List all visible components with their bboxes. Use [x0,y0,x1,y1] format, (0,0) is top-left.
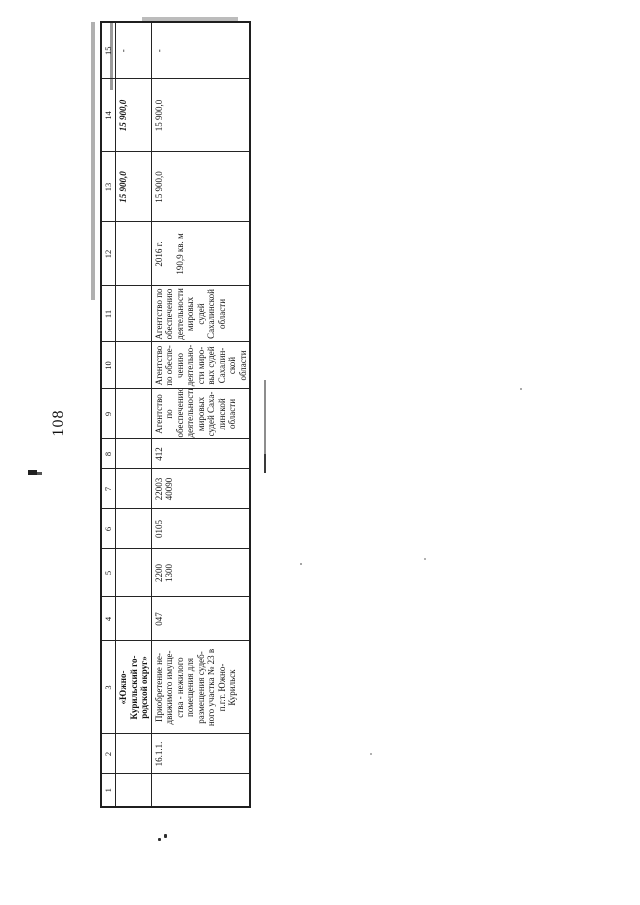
separator-line-faded [264,380,266,454]
separator-line [264,454,266,473]
item-row: 16.1.1. Приобретение не- движимого имуще… [151,22,250,807]
cell-item-description: Приобретение не- движимого имуще- ства -… [151,641,250,734]
cell-code-4: 047 [151,597,250,641]
empty-cell [151,774,250,807]
rotated-landscape-sheet: 108 1 2 3 4 5 6 [0,0,640,905]
header-cell-14: 14 [101,79,116,152]
scanned-page: 108 1 2 3 4 5 6 [0,0,640,905]
header-cell-11: 11 [101,286,116,342]
header-cell-7: 7 [101,469,116,509]
empty-cell [116,222,152,286]
cell-code-6: 0105 [151,509,250,549]
empty-cell [116,389,152,439]
cell-period-area: 2016 г. 190,9 кв. м [151,222,250,286]
page-number: 108 [50,401,68,445]
scan-speckle [158,838,161,841]
header-cell-5: 5 [101,549,116,597]
cell-code-8: 412 [151,439,250,469]
cell-item-number: 16.1.1. [151,734,250,774]
cell-agency-9: Агентство по обеспечению деятельности ми… [151,389,250,439]
scan-speckle [164,834,167,838]
header-cell-3: 3 [101,641,116,734]
cell-section-total-13: 15 900,0 [116,152,152,222]
header-cell-9: 9 [101,389,116,439]
header-cell-13: 13 [101,152,116,222]
scan-speckle [370,753,372,755]
empty-cell [116,469,152,509]
scan-speckle [520,388,522,390]
header-cell-12: 12 [101,222,116,286]
header-cell-1: 1 [101,774,116,807]
empty-cell [116,509,152,549]
empty-cell [116,286,152,342]
cell-amount-13: 15 900,0 [151,152,250,222]
cell-section-total-14: 15 900,0 [116,79,152,152]
budget-table: 1 2 3 4 5 6 7 8 9 10 11 12 13 14 15 «Южн… [100,21,251,808]
header-cell-2: 2 [101,734,116,774]
header-cell-4: 4 [101,597,116,641]
section-row: «Южно- Курильский го- родской округ» 15 … [116,22,152,807]
empty-cell [116,597,152,641]
stray-mark [28,470,37,475]
scan-speckle [300,563,302,565]
cell-code-7: 22003 40090 [151,469,250,509]
empty-cell [116,774,152,807]
scan-speckle [424,558,426,560]
empty-cell [116,439,152,469]
cell-code-5: 2200 1300 [151,549,250,597]
empty-cell [116,734,152,774]
header-cell-10: 10 [101,342,116,389]
cell-section-dash-15: - [116,22,152,79]
cell-agency-11: Агентство по обеспечению деятельности ми… [151,286,250,342]
header-cell-15: 15 [101,22,116,79]
empty-cell [116,549,152,597]
header-cell-8: 8 [101,439,116,469]
cell-dash-15: - [151,22,250,79]
empty-cell [116,342,152,389]
header-cell-6: 6 [101,509,116,549]
scan-smudge [91,22,95,300]
cell-section-name: «Южно- Курильский го- родской округ» [116,641,152,734]
cell-amount-14: 15 900,0 [151,79,250,152]
column-number-row: 1 2 3 4 5 6 7 8 9 10 11 12 13 14 15 [101,22,116,807]
cell-agency-10: Агентство по обеспе- чению деятельно- ст… [151,342,250,389]
